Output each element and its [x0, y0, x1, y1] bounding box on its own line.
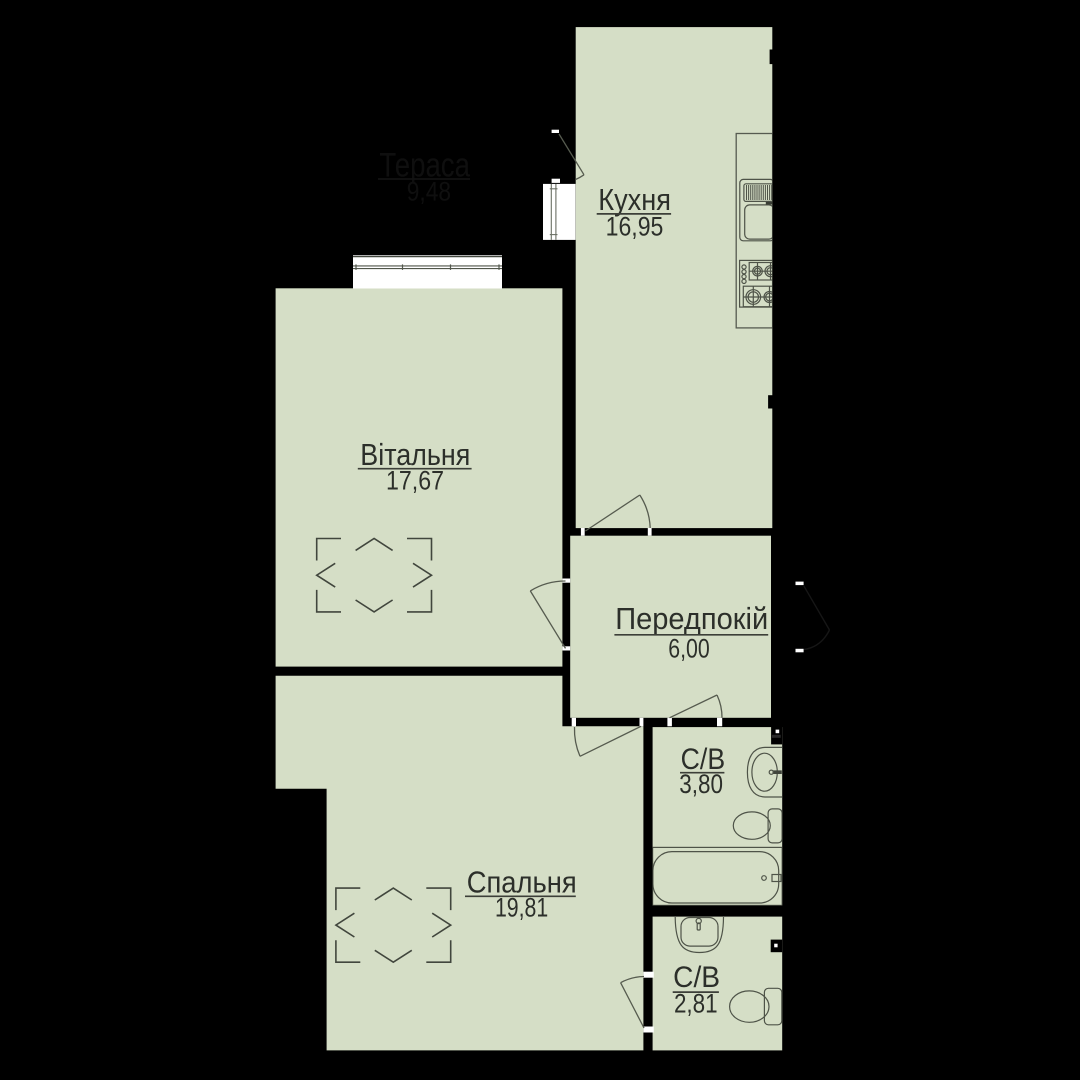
svg-text:6,00: 6,00: [668, 633, 710, 663]
svg-text:3,80: 3,80: [679, 769, 723, 799]
svg-text:2,81: 2,81: [674, 988, 718, 1018]
svg-text:17,67: 17,67: [386, 466, 444, 496]
svg-text:9,48: 9,48: [407, 176, 451, 206]
svg-text:19,81: 19,81: [495, 893, 548, 923]
svg-text:16,95: 16,95: [606, 212, 664, 242]
svg-text:Передпокій: Передпокій: [615, 602, 768, 636]
